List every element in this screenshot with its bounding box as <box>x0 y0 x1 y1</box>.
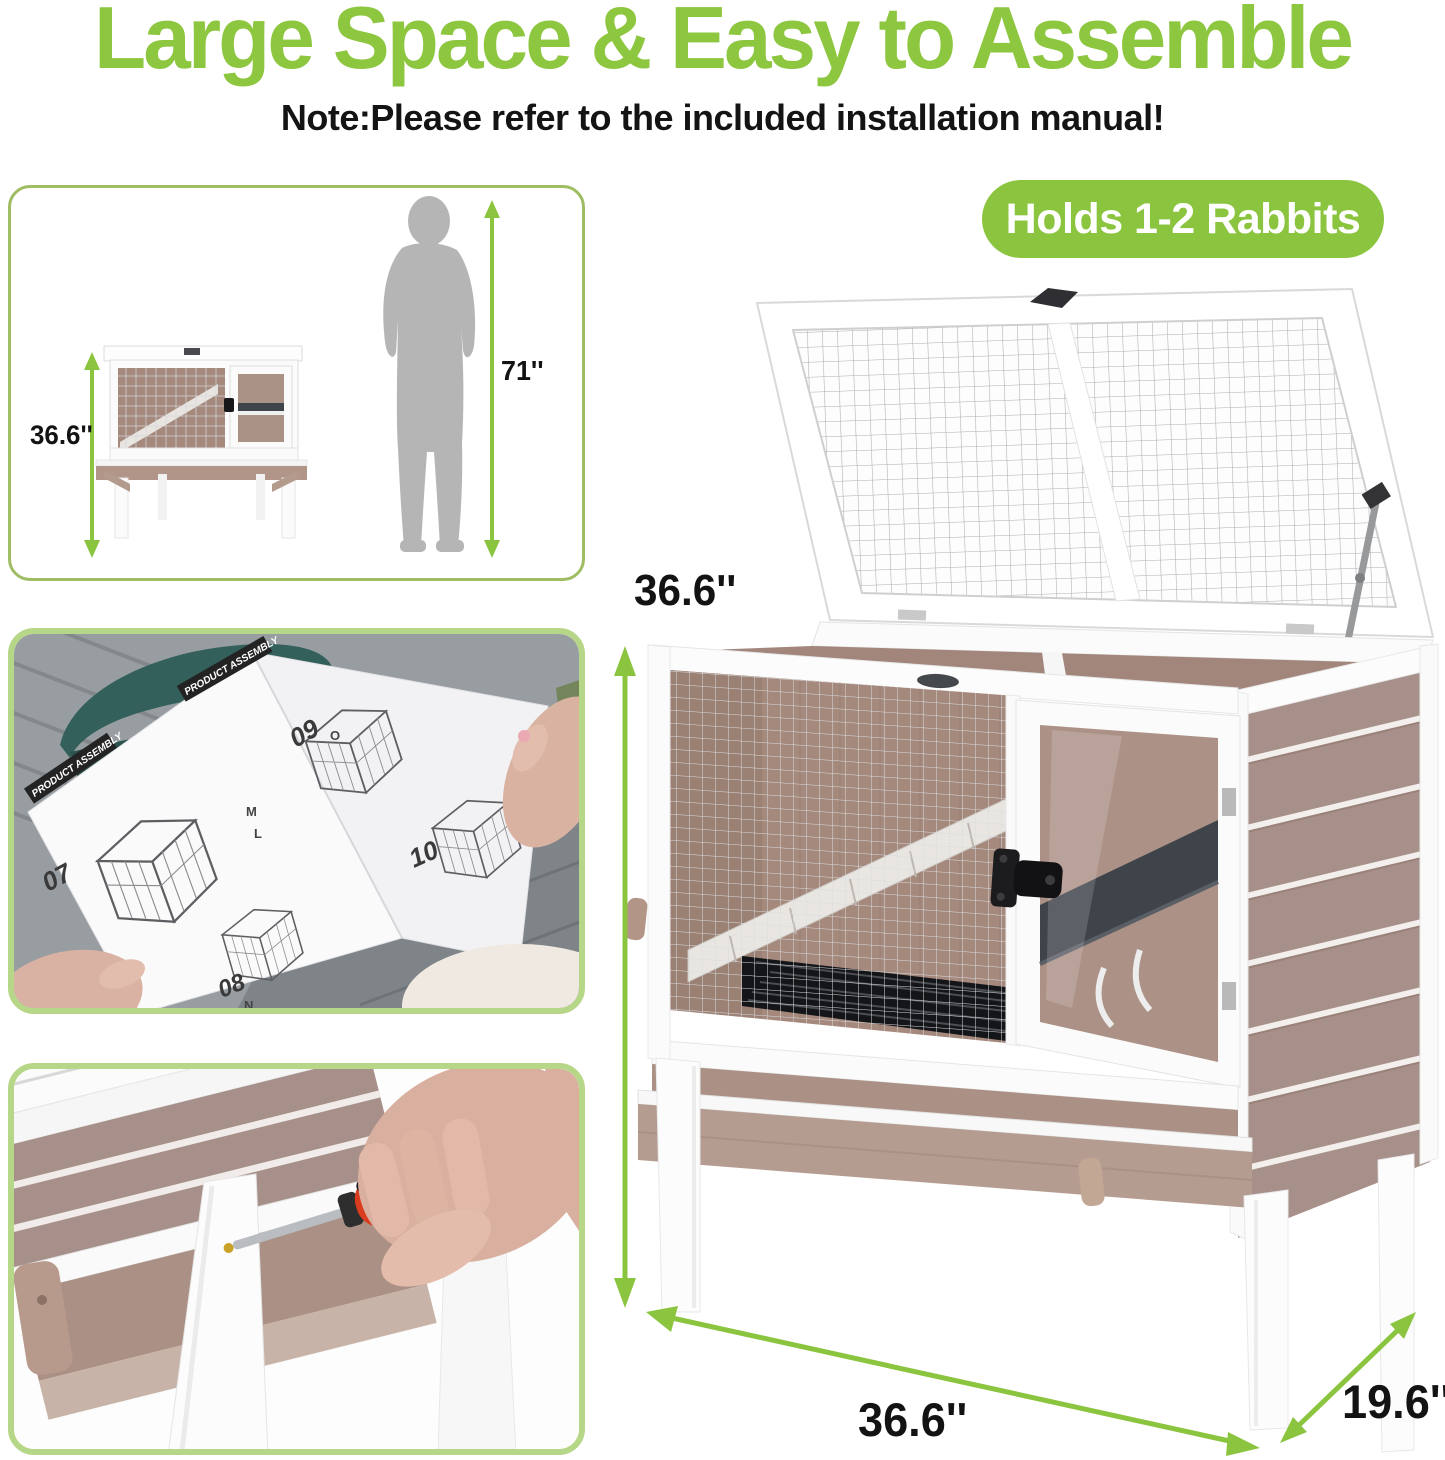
fingernail <box>518 730 530 742</box>
capacity-badge: Holds 1-2 Rabbits <box>982 180 1384 258</box>
height-dimension-label: 36.6'' <box>634 566 736 616</box>
hutch-height-label: 36.6'' <box>30 420 93 451</box>
part-n: N <box>244 998 253 1013</box>
person-height-label: 71'' <box>501 355 544 387</box>
open-mesh-lid <box>757 288 1433 637</box>
size-comparison-figure <box>8 185 585 581</box>
person-silhouette <box>383 196 475 552</box>
lid-hinge-icon <box>1286 624 1314 635</box>
mini-shelf <box>238 403 284 411</box>
depth-dimension-label: 19.6'' <box>1342 1374 1445 1429</box>
side-panel <box>1230 644 1438 1240</box>
part-o: O <box>330 728 340 743</box>
note-text: Note:Please refer to the included instal… <box>0 97 1445 139</box>
capacity-badge-label: Holds 1-2 Rabbits <box>1006 195 1361 244</box>
front-face <box>624 645 1252 1208</box>
width-dimension-label: 36.6'' <box>858 1392 967 1447</box>
lid-hinge-icon <box>898 610 926 621</box>
assembly-photo-panel <box>8 1063 585 1455</box>
part-m: M <box>246 804 257 819</box>
door-hinge-icon <box>1222 982 1236 1010</box>
door-hinge-icon <box>1222 788 1236 816</box>
part-l: L <box>254 826 262 841</box>
hutch-leg-rear <box>438 1250 516 1455</box>
page-title: Large Space & Easy to Assemble <box>22 0 1424 84</box>
mini-lid-latch-icon <box>184 348 200 355</box>
product-infographic: Large Space & Easy to Assemble Note:Plea… <box>0 0 1445 1460</box>
assembly-photo <box>8 1063 585 1455</box>
rabbit-hutch-illustration <box>596 265 1445 1460</box>
front-left-post <box>648 645 670 1062</box>
tray-knob <box>624 897 648 941</box>
front-mesh-panel <box>670 670 1020 1046</box>
mini-hutch-illustration <box>96 346 307 538</box>
front-right-leg <box>1244 1190 1288 1430</box>
mini-door-latch-icon <box>224 398 234 412</box>
size-comparison-panel <box>8 185 585 581</box>
manual-photo-panel: PRODUCT ASSEMBLY PRODUCT ASSEMBLY 07 08 … <box>8 628 585 1014</box>
manual-photo: PRODUCT ASSEMBLY PRODUCT ASSEMBLY 07 08 … <box>8 628 585 1014</box>
front-door <box>990 700 1240 1088</box>
